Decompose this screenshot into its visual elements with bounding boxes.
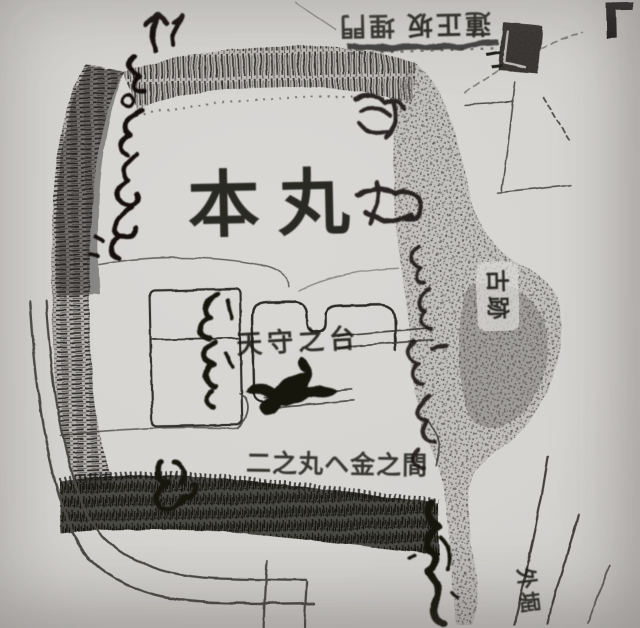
top-note-right-label: 蓮正坂: [404, 7, 492, 39]
top-inverted-note: 蓮正坂 埋門: [337, 7, 500, 53]
honmaru-label: 本丸: [187, 159, 369, 248]
tenshudai-cursive-mark: [245, 356, 338, 416]
ninomaru-label: 二之丸ヘ金之間: [246, 449, 428, 481]
scanned-map-photo: 蓮正坂 埋門 本丸 天守之台 二之丸ヘ金之間 古跡 外堀: [0, 0, 640, 628]
top-note-left-label: 埋門: [337, 9, 396, 40]
south-gate-path-line-2: [304, 582, 308, 628]
tenshudai-label: 天守之台: [235, 323, 361, 361]
storehouse-cursive-label: [200, 294, 234, 407]
kyuseki-label-group: 古跡: [476, 261, 519, 332]
honmaru-south-boundary-east: [299, 268, 399, 290]
storehouse-divider: [151, 338, 239, 340]
south-gate-path-line-1: [262, 561, 268, 628]
north-rampart-hatching: [122, 43, 417, 116]
kyuseki-label: 古跡: [483, 269, 511, 324]
northeast-gate-block: [486, 21, 543, 74]
corner-bracket-line: [606, 1, 635, 38]
plan-lines: [57, 252, 439, 473]
honmaru-south-boundary: [99, 255, 290, 290]
map-canvas: 蓮正坂 埋門 本丸 天守之台 二之丸ヘ金之間 古跡 外堀: [0, 0, 640, 628]
direction-arrow-icon: [147, 13, 168, 51]
